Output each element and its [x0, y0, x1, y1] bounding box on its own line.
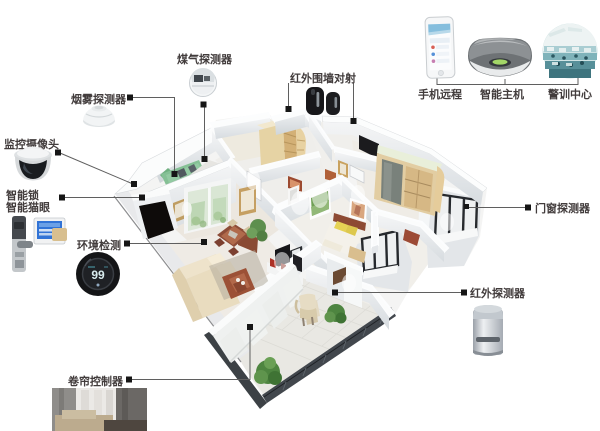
- svg-text:99: 99: [91, 268, 105, 282]
